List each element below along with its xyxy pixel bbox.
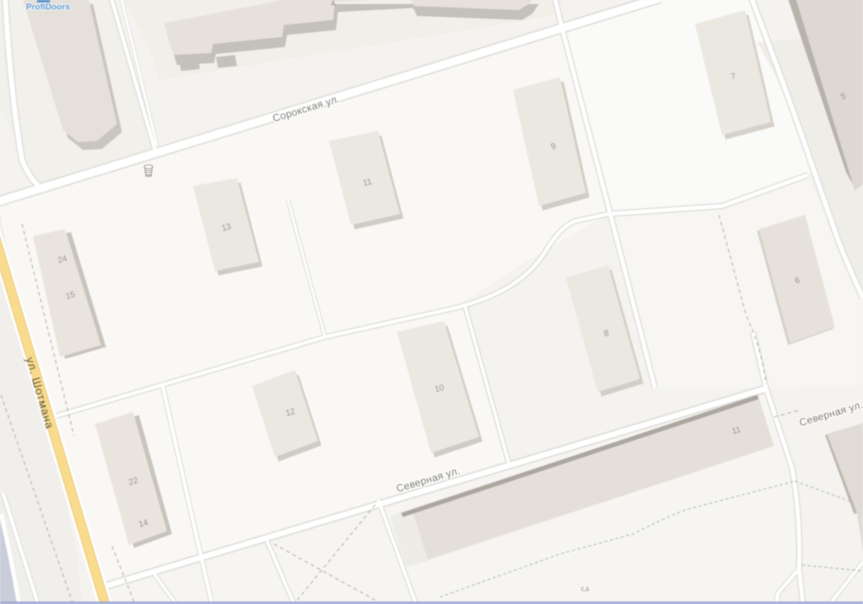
svg-text:ć,à: ć,à xyxy=(581,587,590,593)
svg-text:ProfiDoors: ProfiDoors xyxy=(26,2,70,12)
